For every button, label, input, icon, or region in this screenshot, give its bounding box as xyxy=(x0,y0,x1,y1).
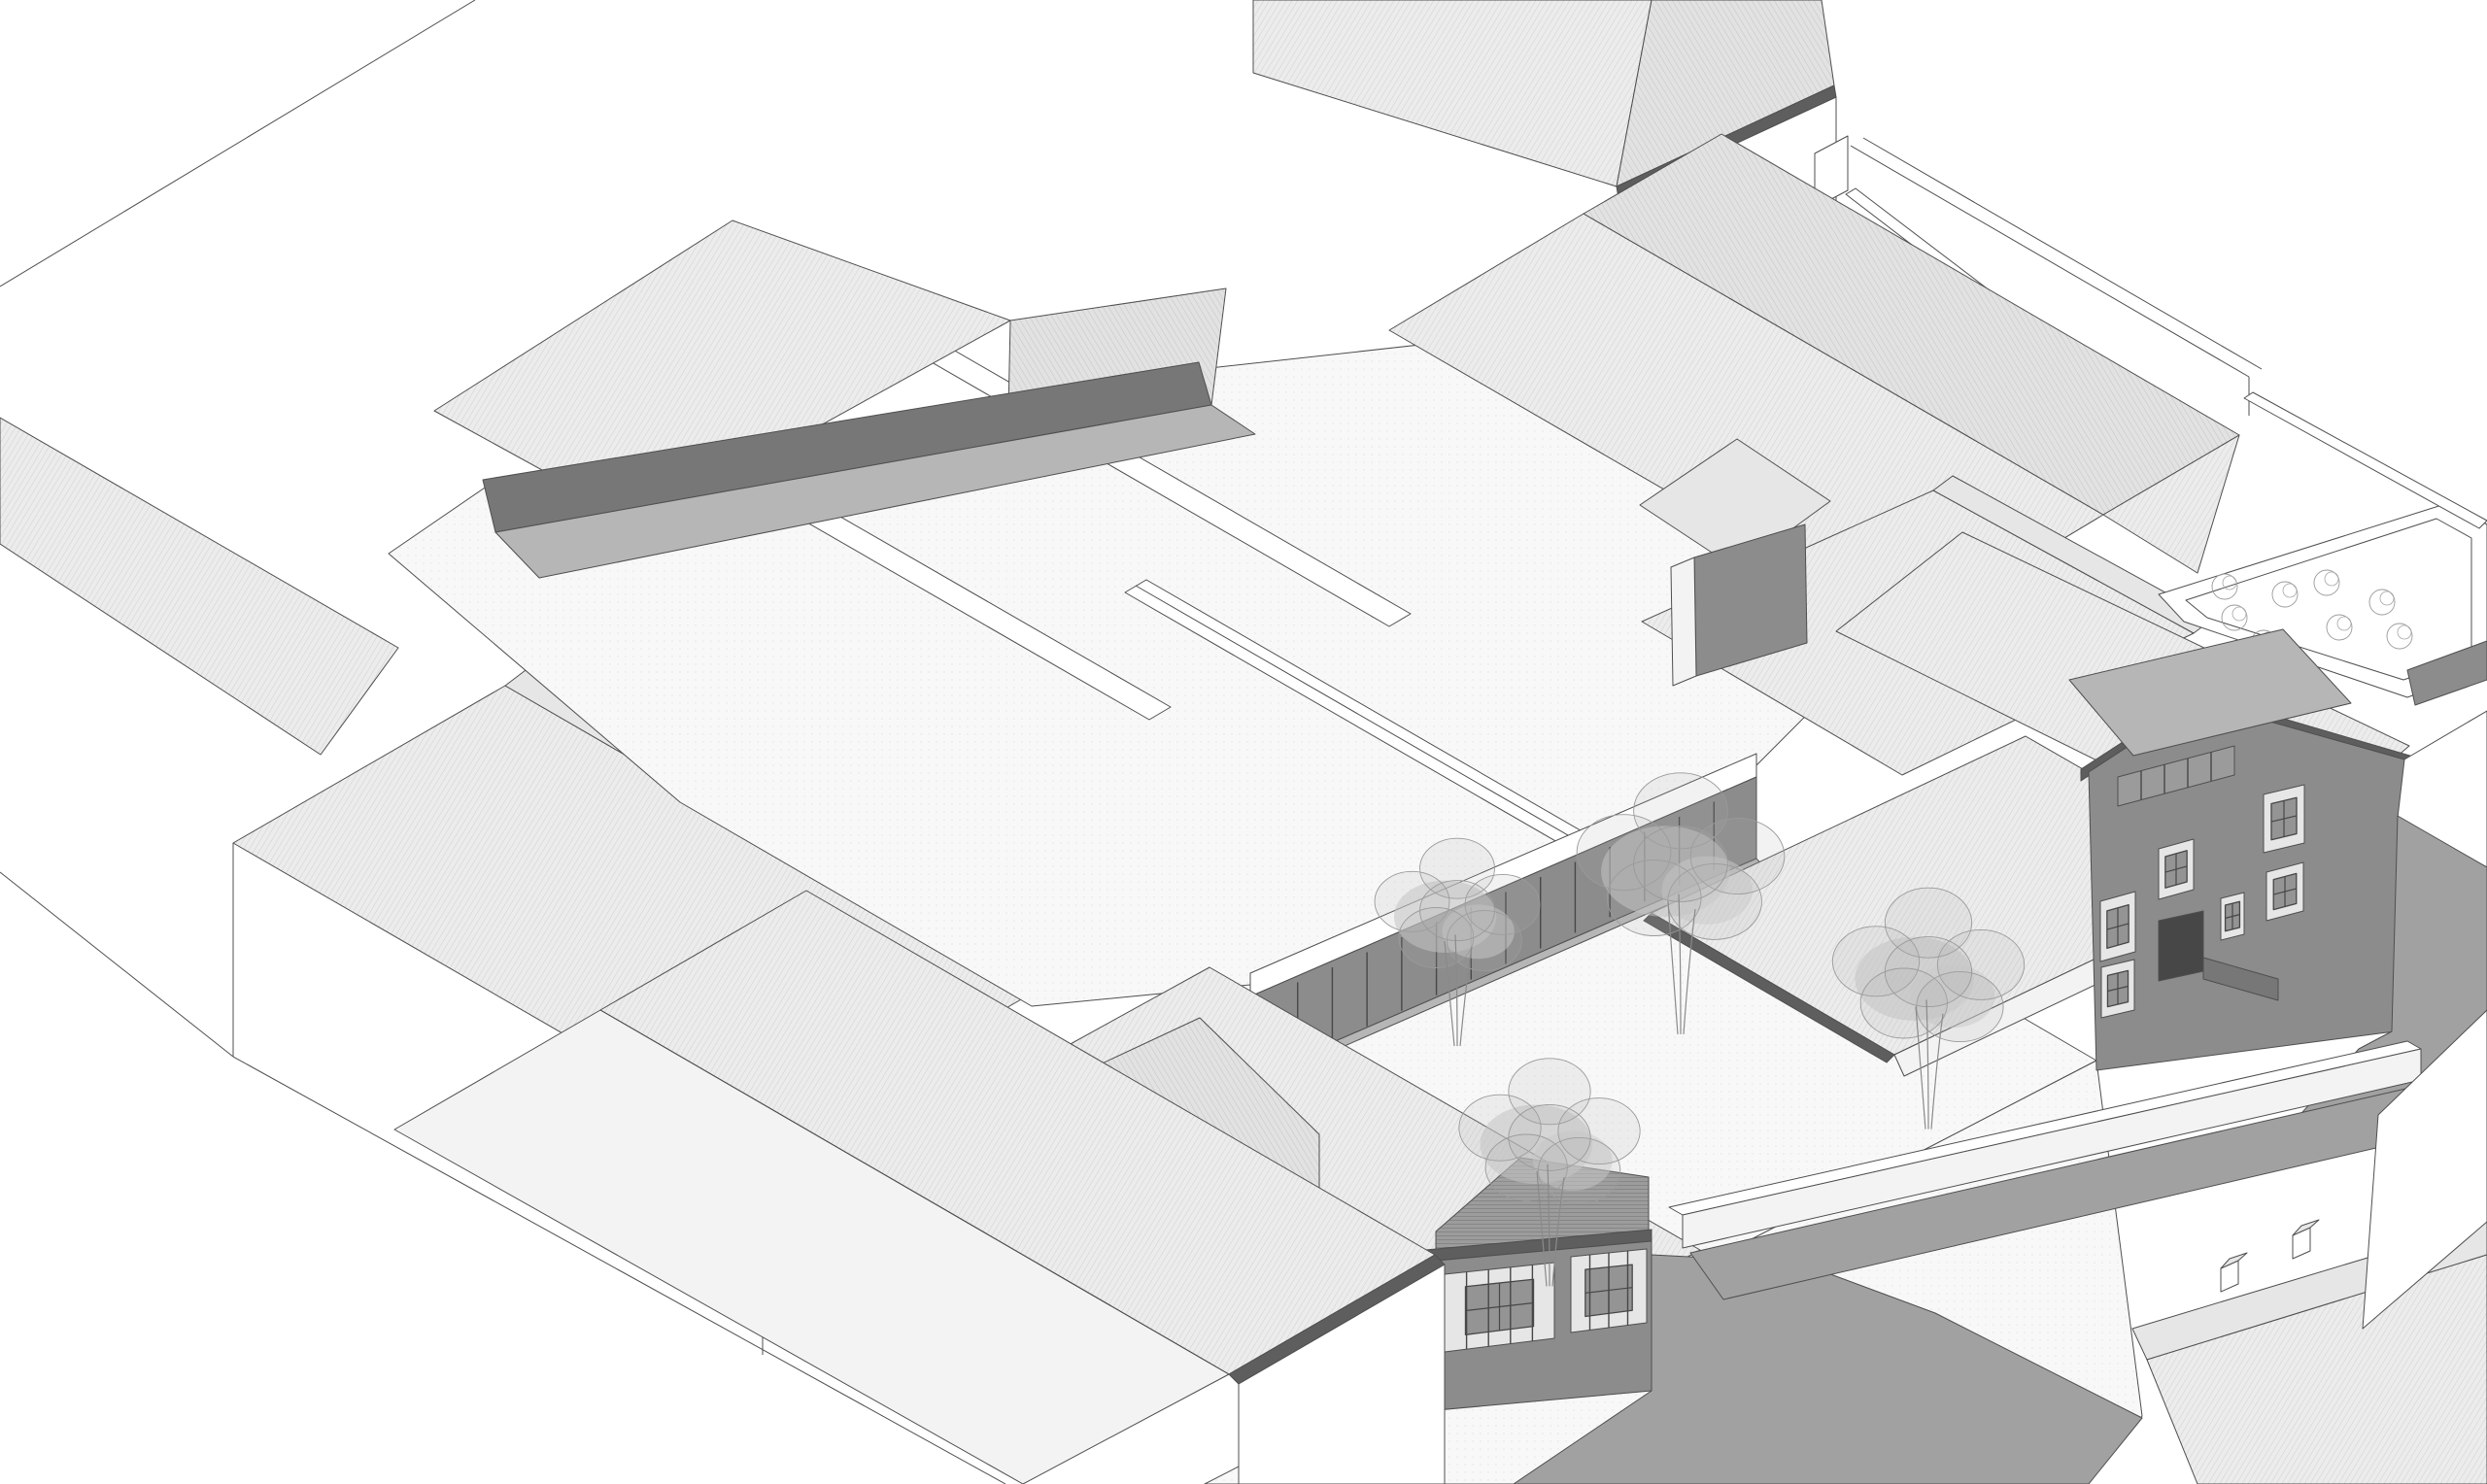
ground-line-topleft xyxy=(0,0,475,287)
axonometric-canvas xyxy=(0,0,2487,1484)
main-house-entry-door xyxy=(2159,911,2203,981)
main-house-window xyxy=(2221,893,2244,940)
main-house-window xyxy=(2266,862,2303,921)
perimeter-roof-band-left xyxy=(0,418,398,755)
main-house-window xyxy=(2100,892,2135,961)
tower-wall-left xyxy=(1671,557,1696,686)
north-building-roof-west xyxy=(1253,0,1652,186)
main-house-window xyxy=(2101,960,2134,1018)
site-axonometric-drawing xyxy=(0,0,2487,1484)
ground-line-left xyxy=(0,872,233,1057)
main-house-window xyxy=(2264,785,2304,853)
low-building-window-group xyxy=(1445,1263,1554,1352)
boundary-wall-east xyxy=(2244,392,2487,528)
main-house-window xyxy=(2159,839,2194,899)
main-house-gable-wall xyxy=(2089,701,2404,1070)
